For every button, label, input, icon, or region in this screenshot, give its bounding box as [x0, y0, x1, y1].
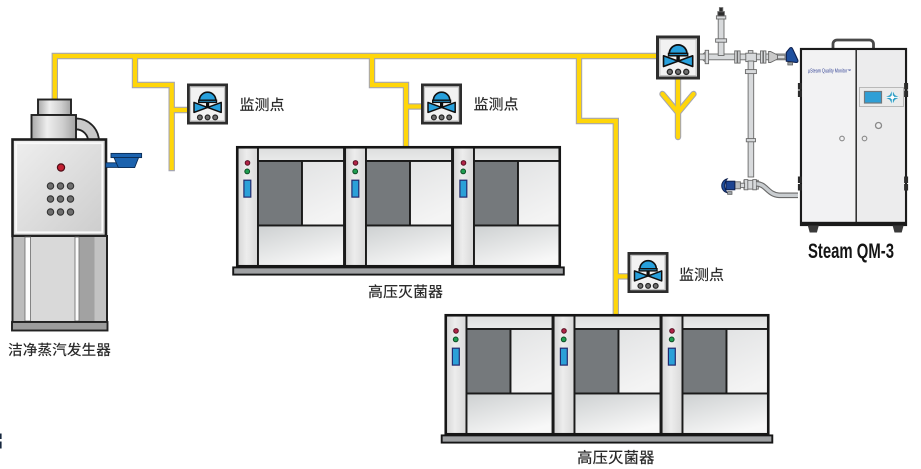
svg-text:Steam QM-3: Steam QM-3	[808, 239, 894, 263]
svg-text:µSteam Quality Monitor™: µSteam Quality Monitor™	[808, 69, 851, 75]
